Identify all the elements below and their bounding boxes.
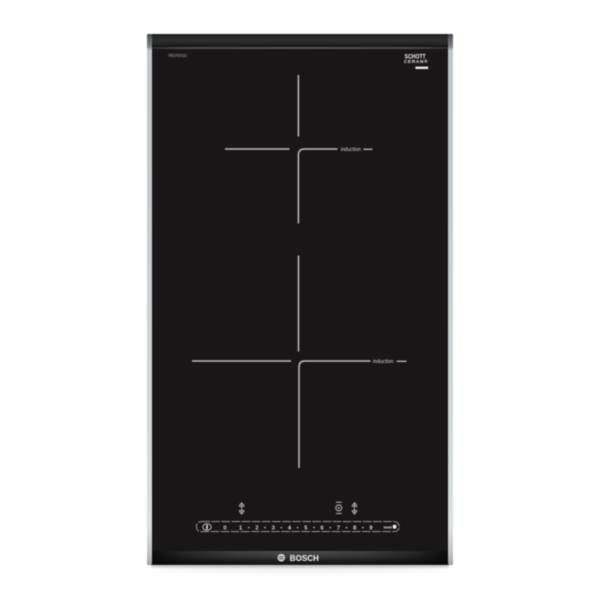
- svg-text:6: 6: [321, 525, 324, 531]
- svg-text:0: 0: [223, 525, 226, 531]
- svg-text:9: 9: [369, 525, 372, 531]
- svg-text:induction: induction: [373, 359, 394, 365]
- svg-text:PIB375FB1E: PIB375FB1E: [168, 53, 188, 58]
- svg-text:5: 5: [304, 525, 307, 531]
- svg-text:induction: induction: [341, 147, 361, 153]
- svg-text:CERAN®: CERAN®: [404, 58, 428, 64]
- svg-text:3: 3: [272, 525, 275, 531]
- svg-text:BOSCH: BOSCH: [290, 553, 319, 563]
- svg-text:8: 8: [353, 525, 356, 531]
- svg-text:7: 7: [337, 525, 340, 531]
- svg-text:4: 4: [288, 525, 292, 531]
- svg-text:boost: boost: [384, 526, 393, 530]
- svg-text:2: 2: [255, 525, 258, 531]
- svg-text:1: 1: [239, 525, 242, 531]
